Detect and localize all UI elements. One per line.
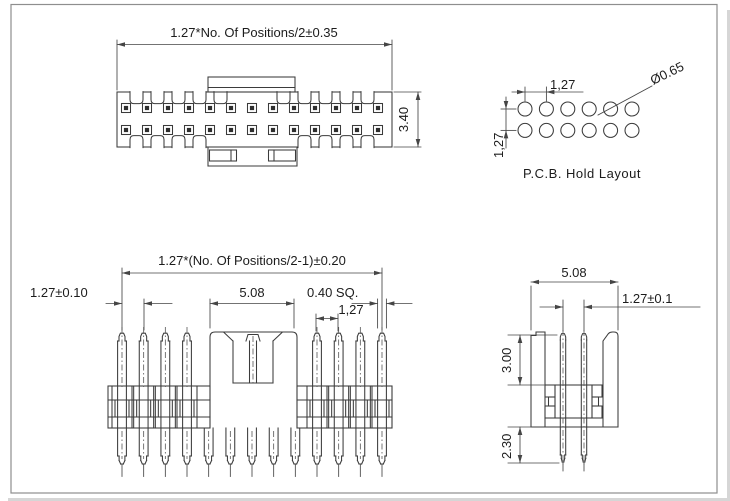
notch-fill: [319, 91, 332, 104]
pcb-vertical-pitch-label: 1,27: [491, 133, 506, 158]
notch-fill: [130, 91, 143, 104]
pcb-hole: [561, 123, 575, 137]
dimension-arrow: [316, 316, 324, 321]
end-pitch-dimension-label: 1.27±0.1: [622, 291, 673, 306]
front-height-dimension-label: 3.40: [396, 107, 411, 132]
dimension-arrow: [122, 271, 130, 276]
end-tab: [545, 385, 555, 397]
notch-fill: [214, 91, 227, 104]
end-view-body: [531, 332, 618, 427]
notch-fill: [193, 136, 206, 149]
dimension-arrow: [384, 42, 392, 47]
dimension-arrow: [374, 271, 382, 276]
dimension-arrow: [518, 455, 523, 463]
pin-contact: [187, 128, 191, 132]
side-view-body: [108, 332, 392, 428]
notch-fill: [151, 91, 164, 104]
dimension-arrow: [210, 301, 218, 306]
dimension-arrow: [330, 316, 338, 321]
dimension-arrow: [416, 139, 421, 147]
pin-contact: [229, 128, 233, 132]
notch-fill: [172, 91, 185, 104]
pin-contact: [166, 106, 170, 110]
end-view: 5.08 1.27±0.1 3.00 2.30: [499, 265, 700, 471]
end-right-wall: [603, 332, 618, 427]
side-view: 1.27*(No. Of Positions/2-1)±0.20 1.27±0.…: [30, 253, 412, 477]
pin-contact: [376, 106, 380, 110]
notch-fill: [151, 136, 164, 149]
dimension-arrow: [504, 101, 509, 109]
end-pin-tail-label: 2.30: [499, 434, 514, 459]
dimension-arrow: [518, 427, 523, 435]
pcb-hold-layout: 1,27 1,27 Ø0.65 P.C.B. Hold Layout: [491, 59, 686, 181]
dimension-arrow: [114, 301, 122, 306]
end-web: [549, 397, 556, 406]
pcb-hole: [625, 123, 639, 137]
drawing-page: 1.27*No. Of Positions/2±0.35 3.40 1,27 1…: [0, 0, 730, 501]
side-span-dimension-label: 1.27*(No. Of Positions/2-1)±0.20: [158, 253, 346, 268]
end-view-dimensions: [508, 280, 700, 463]
shroud-slot-chamfer: [273, 333, 282, 342]
dimension-arrow: [518, 335, 523, 343]
pin-contact: [355, 106, 359, 110]
dimension-arrow: [518, 377, 523, 385]
pin-contact: [271, 128, 275, 132]
pin-contact: [229, 106, 233, 110]
pcb-hole: [539, 123, 553, 137]
insulator-left-band: [108, 386, 210, 428]
notch-fill: [340, 91, 353, 104]
notch-fill: [340, 136, 353, 149]
dimension-arrow: [144, 301, 152, 306]
connector-technical-drawing: 1.27*No. Of Positions/2±0.35 3.40 1,27 1…: [0, 0, 730, 501]
dimension-arrow: [117, 42, 125, 47]
side-shroud-width-label: 5.08: [239, 285, 264, 300]
pcb-hole: [561, 102, 575, 116]
pin-contact: [166, 128, 170, 132]
notch-fill: [172, 136, 185, 149]
pin-contact: [313, 106, 317, 110]
side-pitch-dimension-label: 1.27±0.10: [30, 285, 88, 300]
bottom-latch-right: [269, 150, 296, 161]
pin-contact: [376, 128, 380, 132]
pin-contact: [292, 106, 296, 110]
pin-contact: [313, 128, 317, 132]
pcb-hole: [582, 102, 596, 116]
top-polarizing-tab: [208, 77, 295, 92]
shroud-outline: [210, 332, 297, 428]
pin-contact: [250, 106, 254, 110]
end-pin-height-label: 3.00: [499, 348, 514, 373]
pcb-hole: [518, 123, 532, 137]
pcb-hole: [604, 123, 618, 137]
pin-contact: [124, 128, 128, 132]
dimension-arrow: [531, 280, 539, 285]
pin-contact: [145, 128, 149, 132]
pcb-dimensions: [501, 86, 652, 148]
pcb-holes: [518, 102, 639, 137]
bottom-latch-left: [210, 150, 237, 161]
notch-fill: [298, 136, 311, 149]
pin-contact: [292, 128, 296, 132]
pcb-layout-title: P.C.B. Hold Layout: [523, 166, 641, 181]
front-width-dimension-label: 1.27*No. Of Positions/2±0.35: [170, 25, 338, 40]
dimension-arrow: [416, 92, 421, 100]
notch-fill: [361, 136, 374, 149]
pcb-hole: [582, 123, 596, 137]
pin-contact: [208, 106, 212, 110]
dimension-arrow: [386, 301, 394, 306]
pin-contact: [334, 128, 338, 132]
dimension-arrow: [584, 305, 592, 310]
dimension-arrow: [286, 301, 294, 306]
notch-fill: [277, 91, 290, 104]
pin-contact: [334, 106, 338, 110]
end-width-dimension-label: 5.08: [561, 265, 586, 280]
dimension-arrow: [370, 301, 378, 306]
pin-contact: [355, 128, 359, 132]
end-web: [592, 397, 599, 406]
notch-fill: [361, 91, 374, 104]
dimension-arrow: [555, 305, 563, 310]
pin-contact: [124, 106, 128, 110]
pcb-hole-diameter-label: Ø0.65: [648, 59, 686, 88]
pin-contact: [271, 106, 275, 110]
pcb-hole: [539, 102, 553, 116]
front-view: 1.27*No. Of Positions/2±0.35 3.40: [117, 25, 421, 166]
end-left-wall: [531, 332, 545, 427]
drawing-frame: [8, 5, 730, 501]
dimension-arrow: [517, 90, 525, 95]
side-row-pitch-label: 1,27: [338, 302, 363, 317]
pin-contact: [250, 128, 254, 132]
end-tab: [592, 406, 602, 418]
notch-fill: [319, 136, 332, 149]
pcb-hole: [518, 102, 532, 116]
pin-contact: [187, 106, 191, 110]
pcb-horizontal-pitch-label: 1,27: [550, 77, 575, 92]
front-view-body: [117, 77, 392, 166]
pin-contact: [208, 128, 212, 132]
pin-contact: [145, 106, 149, 110]
end-tab: [545, 406, 555, 418]
side-pin-square-label: 0.40 SQ.: [307, 285, 358, 300]
notch-fill: [130, 136, 143, 149]
notch-fill: [298, 91, 311, 104]
end-tab: [592, 385, 602, 397]
end-view-pins: [560, 330, 586, 471]
pcb-hole: [604, 102, 618, 116]
shroud-slot-chamfer: [224, 333, 233, 342]
pcb-hole: [625, 102, 639, 116]
dimension-arrow: [610, 280, 618, 285]
notch-fill: [193, 91, 206, 104]
